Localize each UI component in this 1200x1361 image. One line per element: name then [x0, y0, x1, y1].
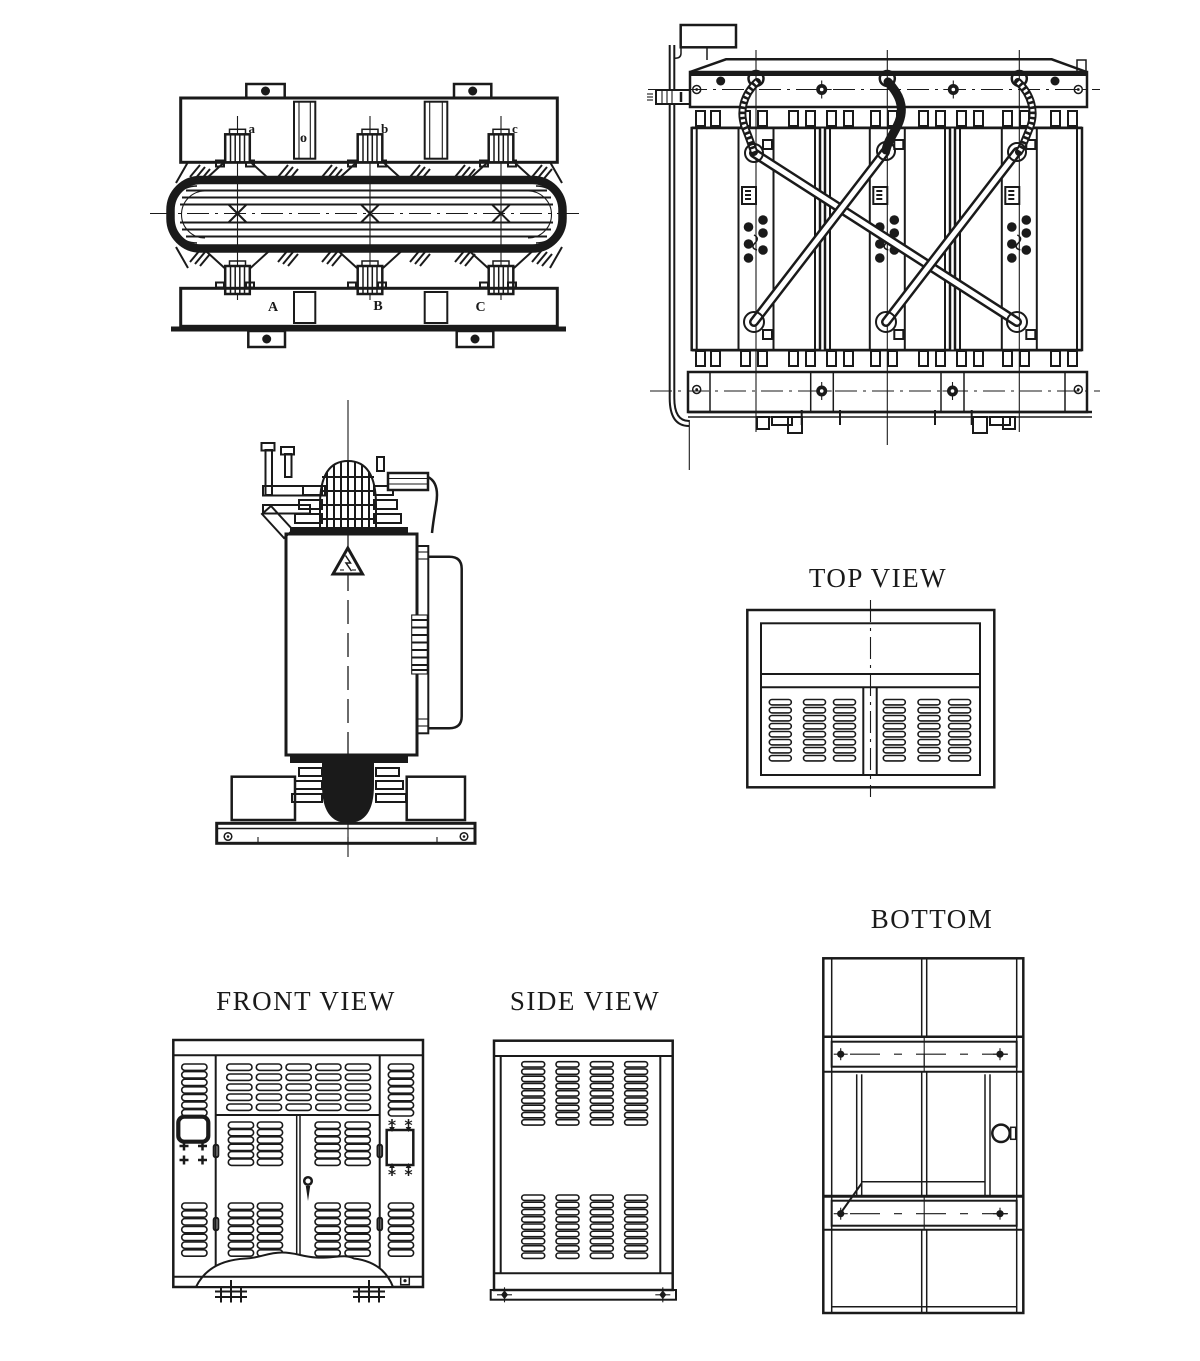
side-view-louvers [522, 1062, 648, 1259]
hv-terminal-label-A: A [268, 300, 279, 315]
front-view-title: FRONT VIEW [216, 986, 396, 1016]
enclosure-side-view: SIDE VIEW [491, 986, 676, 1302]
bottom-bushing-assembly [232, 755, 465, 823]
bottom-lifting-lugs [248, 331, 493, 347]
lower-cross-beam [823, 1196, 1023, 1229]
middle-compartment [839, 1074, 1015, 1215]
base-channel [217, 823, 475, 843]
enclosure-top-view: TOP VIEW [747, 563, 994, 797]
top-lifting-lugs [246, 84, 491, 98]
top-view-title: TOP VIEW [809, 563, 947, 593]
lv-terminal-label-b: b [381, 121, 388, 136]
hv-terminal-label-C: C [475, 300, 485, 315]
core-coil-side-view [217, 400, 475, 857]
enclosure-bottom-view: BOTTOM [823, 904, 1023, 1313]
ground-clamp [647, 90, 690, 104]
control-display-screen [178, 1117, 208, 1142]
door-handle [304, 1177, 312, 1201]
side-view-title: SIDE VIEW [510, 986, 660, 1016]
nameplate [387, 1119, 414, 1176]
transformer-outline-drawing: a o b c [0, 0, 1200, 1361]
lv-terminal-label-c: c [512, 121, 518, 136]
technical-drawing-sheet: a o b c [0, 0, 1200, 1361]
hv-terminal-label-B: B [373, 299, 382, 314]
lv-bushings [225, 129, 513, 162]
side-base-plate [491, 1290, 676, 1300]
mounting-feet [757, 417, 1015, 433]
top-view-louvers [769, 700, 970, 761]
top-bushing-assembly [262, 443, 438, 538]
core-yoke-band [169, 180, 565, 249]
enclosure-front-view: FRONT VIEW [173, 986, 423, 1303]
cable-cover-mound [196, 1253, 393, 1288]
ground-conductor [670, 45, 690, 470]
upper-cross-beam [823, 1037, 1023, 1072]
terminal-box [681, 25, 736, 47]
neutral-label: o [300, 131, 307, 146]
warning-triangle-icon [333, 548, 363, 574]
door-knob [992, 1125, 1009, 1142]
delta-busbars [754, 152, 1017, 322]
side-bracket-and-duct [412, 546, 462, 733]
bottom-view-title: BOTTOM [871, 904, 994, 934]
lv-terminal-label-a: a [249, 121, 256, 136]
core-coil-front-view [647, 25, 1100, 470]
core-coil-plan-view: a o b c [150, 84, 582, 347]
